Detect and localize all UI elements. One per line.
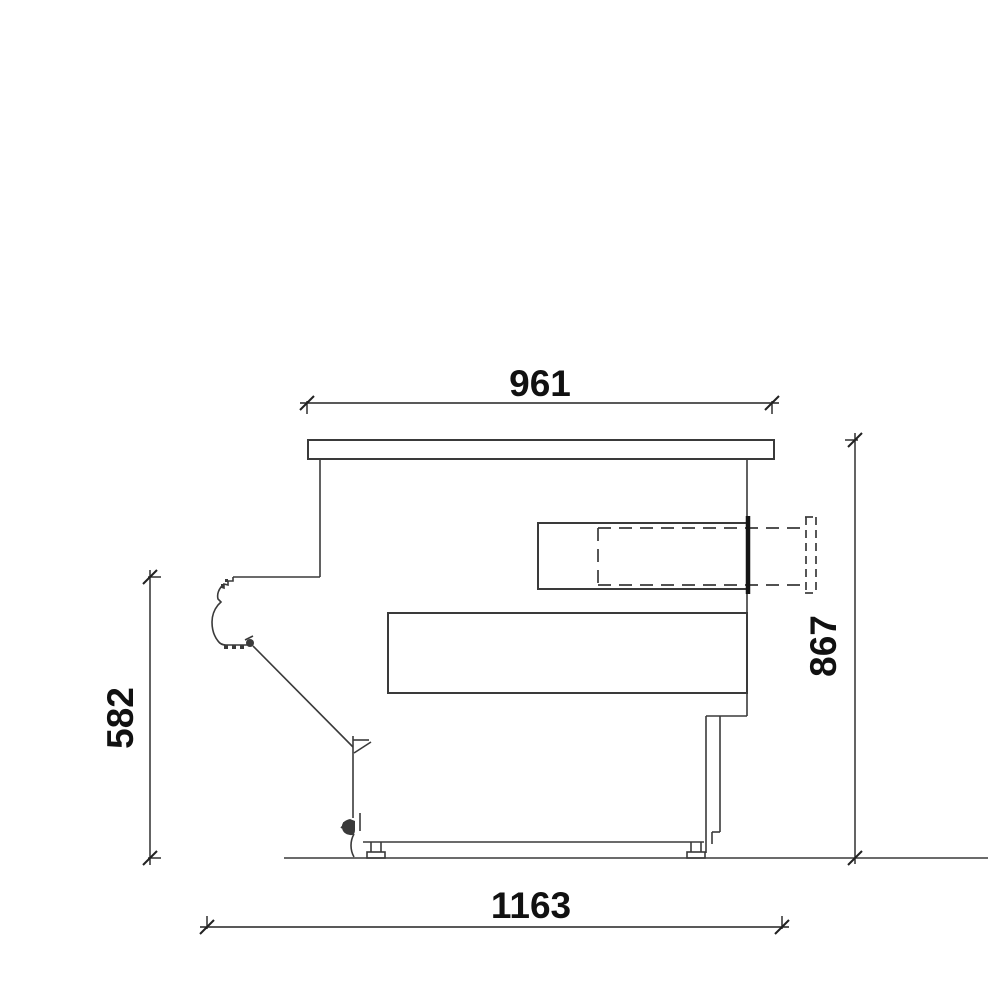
drawing-sheet: 961 1163 582 867 xyxy=(0,0,1000,1000)
glass-bottom-tick xyxy=(354,742,371,753)
base-assembly xyxy=(363,716,747,858)
countertop-outline xyxy=(308,440,774,459)
dim-right-label: 867 xyxy=(803,615,844,677)
dimension-bottom-width: 1163 xyxy=(200,885,789,934)
dim-left-label: 582 xyxy=(100,687,141,749)
countertop-slab xyxy=(308,440,774,459)
kick-foot-curve xyxy=(351,834,354,857)
left-foot xyxy=(367,842,385,858)
rail-profile-path xyxy=(212,577,247,645)
counter-walls xyxy=(233,459,747,716)
right-foot xyxy=(687,842,705,858)
shelf-box xyxy=(538,523,747,589)
dim-bottom-label: 1163 xyxy=(491,885,571,926)
mid-panel-outline xyxy=(388,613,747,693)
rail-clip-nub-2 xyxy=(221,584,224,587)
dimension-top-width: 961 xyxy=(300,363,779,414)
tray-rail-profile xyxy=(212,577,254,649)
glass-diagonal-line xyxy=(253,646,353,747)
shelf-box-outline xyxy=(538,523,747,589)
right-foot-plate xyxy=(687,852,705,858)
dim-top-label: 961 xyxy=(509,363,571,404)
rail-clip-nub-1 xyxy=(225,579,228,582)
rail-tooth-2 xyxy=(232,645,236,649)
front-glass-panel xyxy=(253,646,371,857)
dimension-right-height: 867 xyxy=(803,433,862,865)
mid-panel xyxy=(388,613,747,693)
sliding-tray-dashed xyxy=(598,516,817,594)
rail-tooth-3 xyxy=(240,645,244,649)
rail-end-clip xyxy=(246,639,254,647)
section-drawing: 961 1163 582 867 xyxy=(0,0,1000,1000)
left-foot-plate xyxy=(367,852,385,858)
dimension-left-height: 582 xyxy=(100,570,161,865)
rail-tooth-1 xyxy=(224,645,228,649)
